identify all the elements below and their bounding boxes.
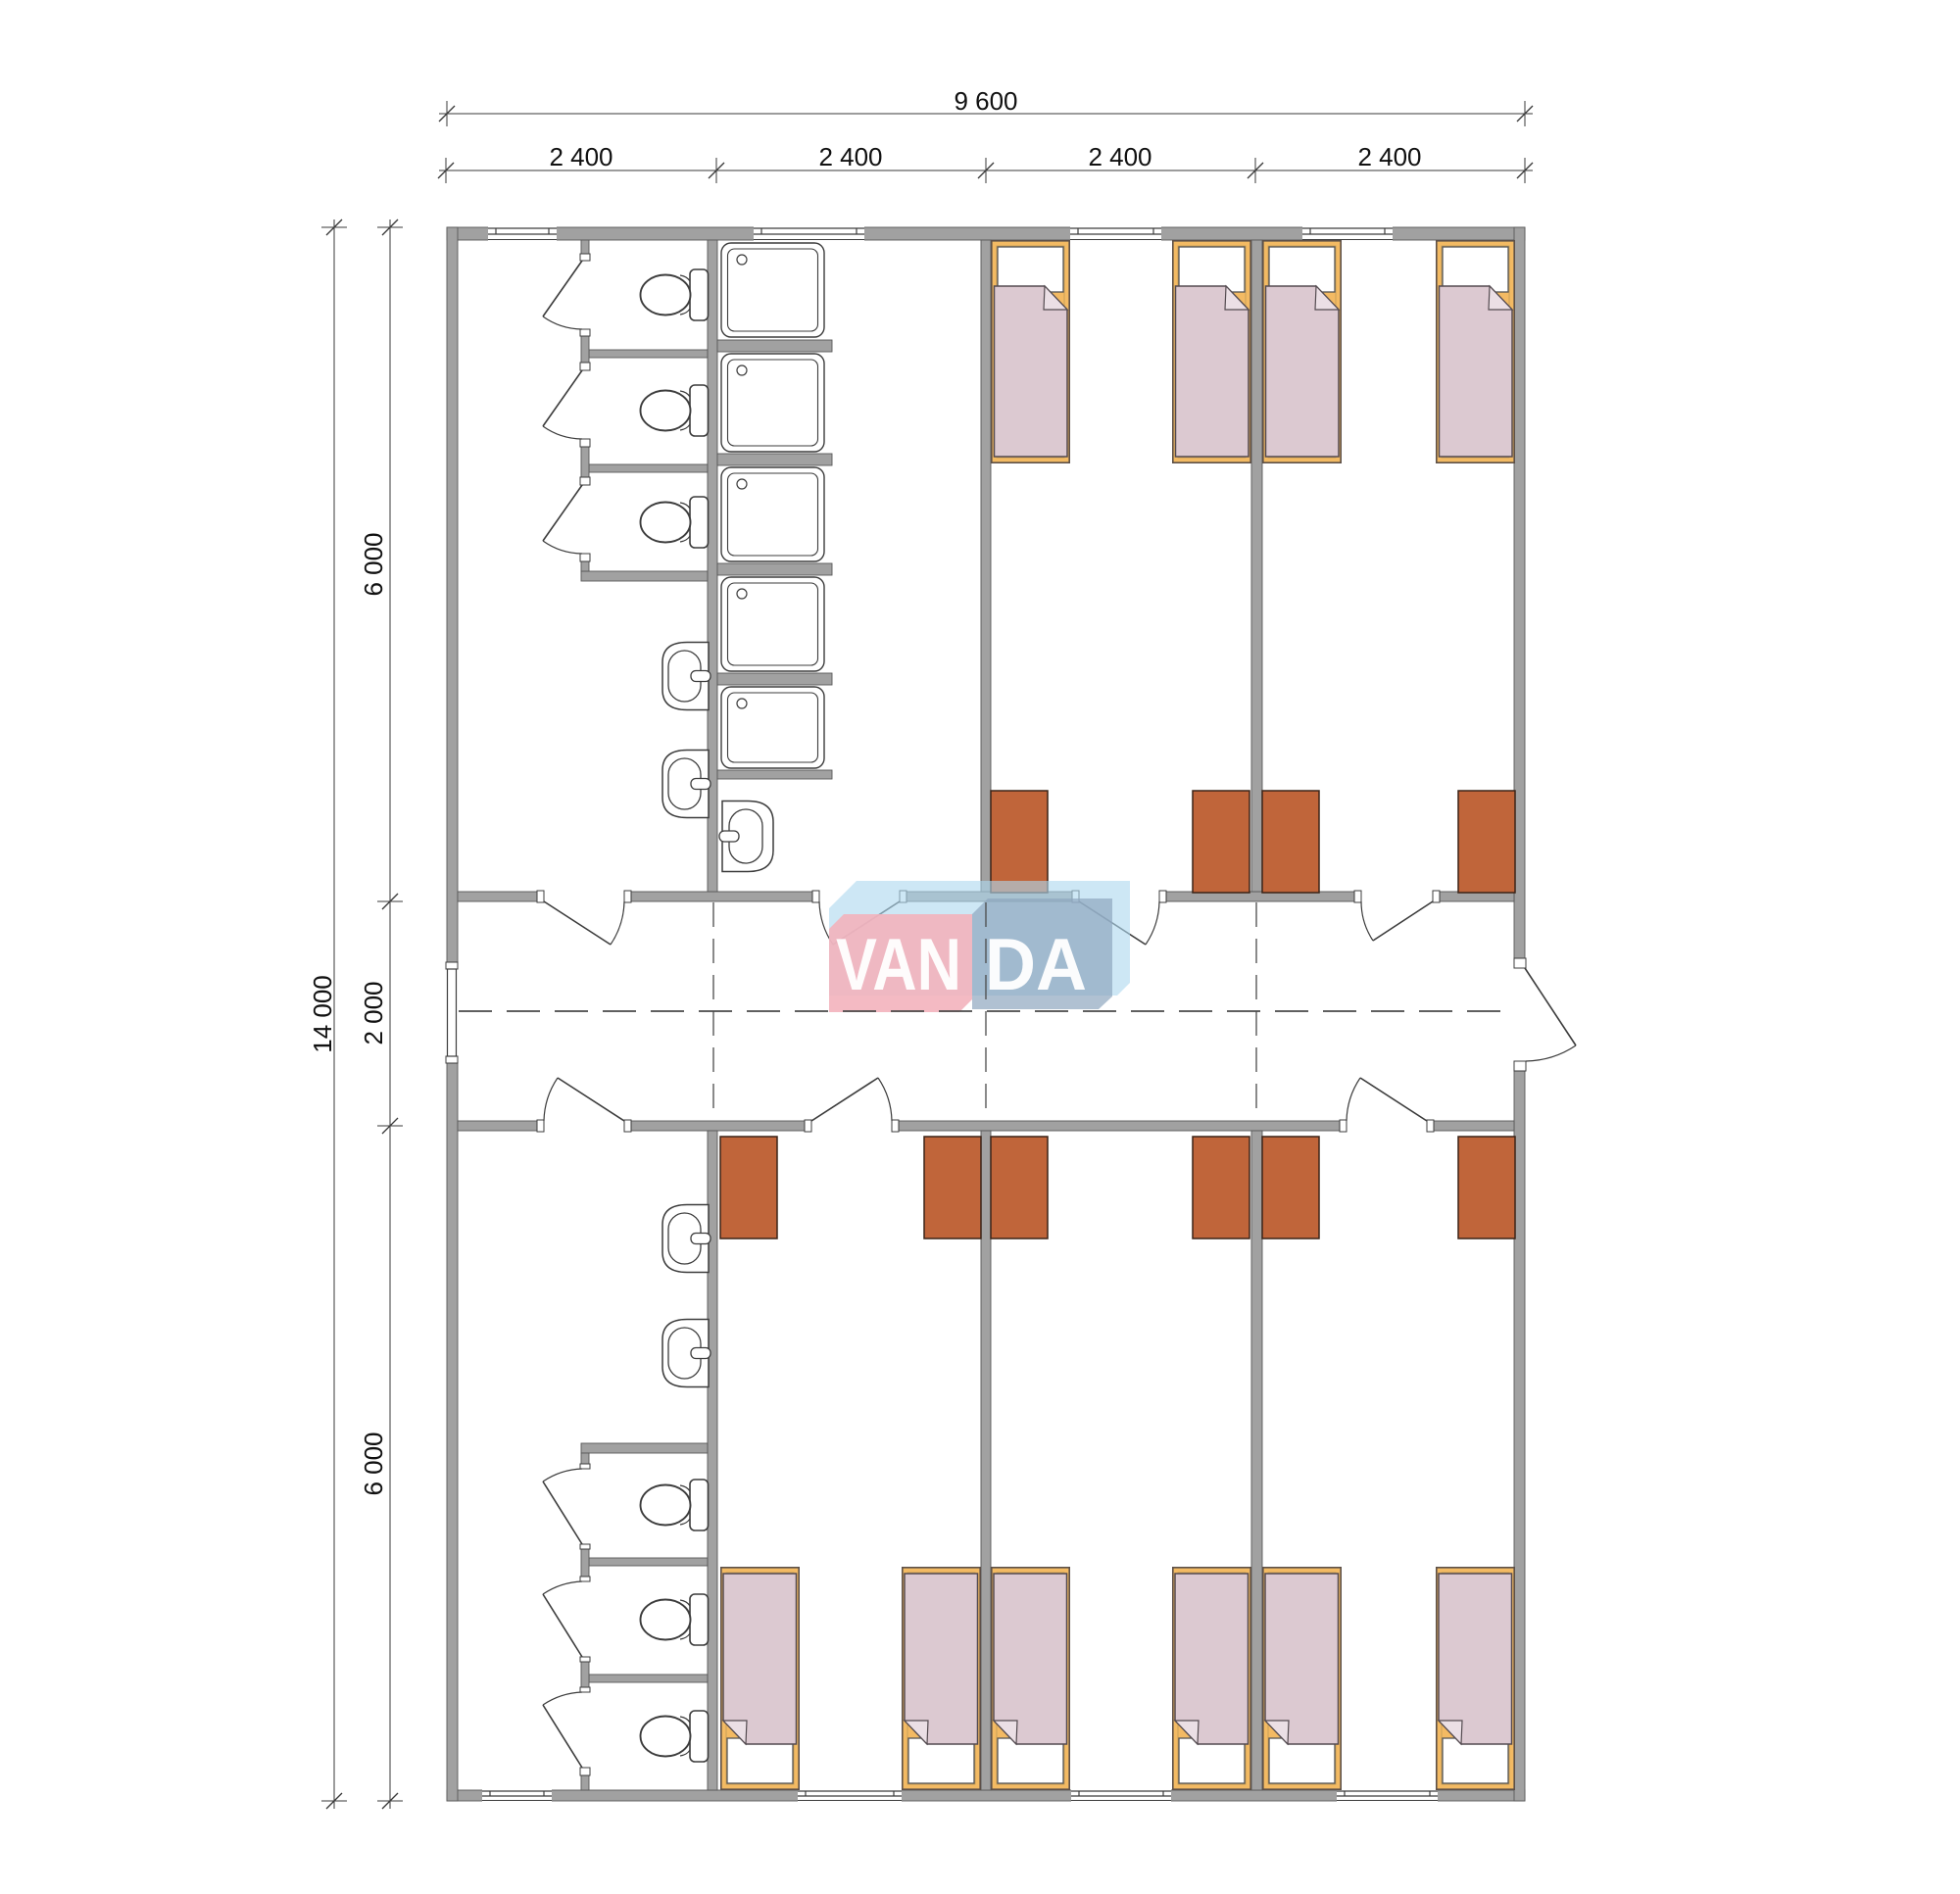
svg-text:2 400: 2 400 — [1357, 142, 1421, 171]
svg-text:2 400: 2 400 — [549, 142, 612, 171]
svg-text:6 000: 6 000 — [359, 532, 388, 596]
svg-text:14 000: 14 000 — [308, 975, 337, 1053]
svg-text:9 600: 9 600 — [954, 86, 1017, 116]
svg-text:2 000: 2 000 — [359, 981, 388, 1044]
svg-text:VAN: VAN — [836, 923, 961, 1005]
svg-text:2 400: 2 400 — [1088, 142, 1151, 171]
svg-text:2 400: 2 400 — [818, 142, 882, 171]
svg-text:6 000: 6 000 — [359, 1432, 388, 1495]
svg-text:DA: DA — [985, 923, 1087, 1005]
